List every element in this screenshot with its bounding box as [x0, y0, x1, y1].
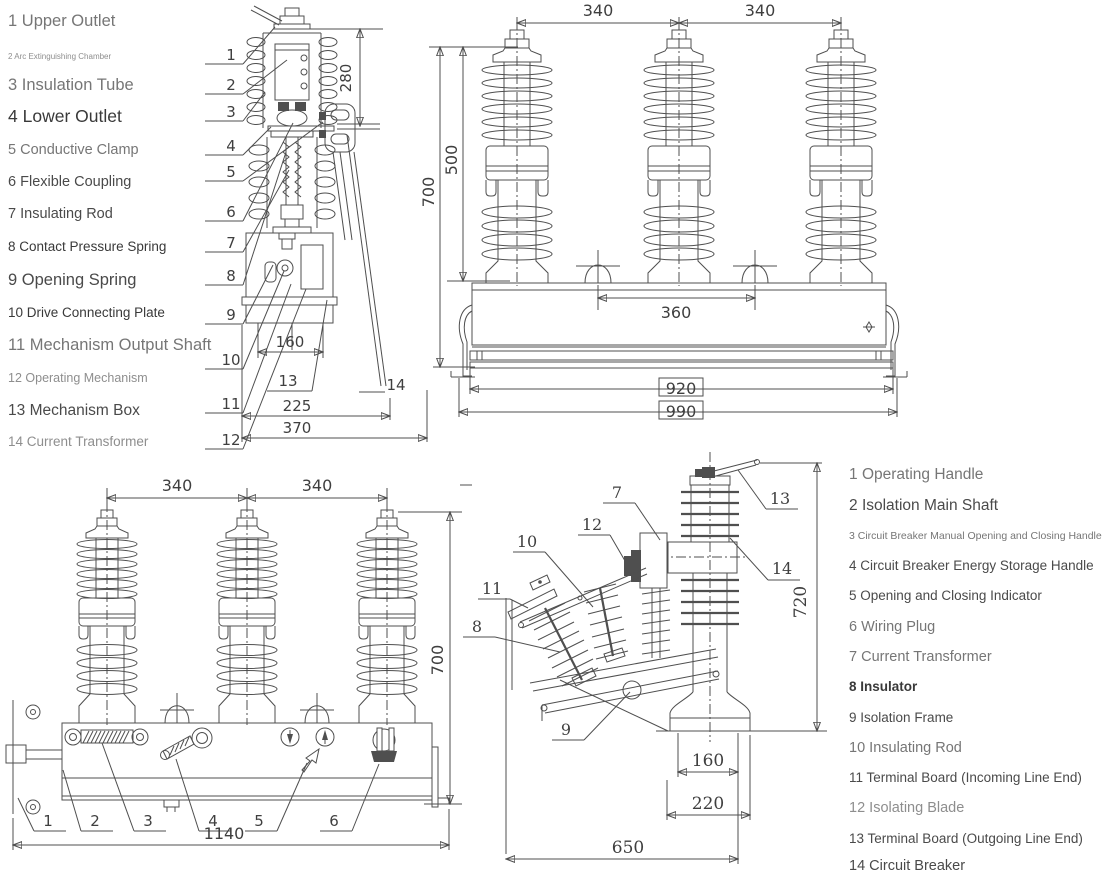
item-label: Isolation Frame: [860, 710, 953, 725]
tilted-insulator-10: [584, 584, 628, 662]
leader-number: 1: [226, 46, 236, 64]
pole: [644, 20, 714, 286]
leader-number: 13: [278, 372, 297, 390]
inter-pole-bushing: [576, 250, 777, 283]
item-label: Wiring Plug: [861, 619, 935, 635]
leader-number: 12: [221, 431, 240, 449]
list-item: 13 Terminal Board (Outgoing Line End): [849, 832, 1083, 847]
dim-label: 340: [162, 476, 193, 495]
terminal-board-incoming: [508, 575, 557, 619]
leader-numbers: 1 2 3 4 5 6: [43, 812, 339, 830]
item-label: Mechanism Box: [30, 402, 140, 419]
closing-spring: [65, 729, 148, 745]
list-item: 3 Insulation Tube: [8, 76, 134, 94]
leader-number: 5: [254, 812, 264, 830]
dimensions: 340 340 700 1140: [13, 476, 462, 850]
item-label: Flexible Coupling: [20, 174, 131, 190]
list-item: 3 Circuit Breaker Manual Opening and Clo…: [849, 531, 1102, 543]
list-item: 12 Operating Mechanism: [8, 372, 148, 386]
circuit-breaker-pole: [656, 452, 770, 742]
item-label: Operating Mechanism: [25, 371, 147, 385]
item-number: 12: [8, 371, 22, 385]
list-item: 12 Isolating Blade: [849, 801, 964, 817]
leader-number: 2: [90, 812, 100, 830]
dim-label: 340: [745, 1, 776, 20]
dimensions: 340 340 700 500 360 920 990: [419, 1, 897, 421]
list-item: 2 Arc Extinguishing Chamber: [8, 53, 111, 62]
list-item: 7 Current Transformer: [849, 650, 992, 666]
dim-label: 280: [337, 64, 355, 93]
item-label: Arc Extinguishing Chamber: [14, 52, 111, 61]
item-label: Upper Outlet: [22, 12, 116, 30]
leader-number: 7: [226, 234, 236, 252]
item-label: Operating Handle: [862, 466, 984, 483]
pole: [806, 20, 876, 286]
current-transformer: [624, 533, 667, 588]
dim-label: 650: [612, 838, 644, 858]
front-view-top-drawing: 340 340 700 500 360 920 990: [425, 0, 915, 445]
item-number: 5: [8, 142, 16, 158]
pole: [482, 20, 552, 286]
list-item: 5 Opening and Closing Indicator: [849, 589, 1042, 604]
item-label: Opening and Closing Indicator: [860, 588, 1042, 603]
leader-number: 10: [221, 351, 240, 369]
leader-number: 10: [517, 532, 537, 551]
item-number: 1: [8, 12, 17, 30]
item-number: 13: [8, 402, 25, 419]
pole: [77, 502, 137, 725]
leader-number: 12: [582, 515, 602, 534]
list-item: 2 Isolation Main Shaft: [849, 497, 998, 514]
dim-label: 720: [791, 586, 811, 618]
dim-label: 340: [583, 1, 614, 20]
list-item: 6 Wiring Plug: [849, 620, 935, 636]
list-item: 4 Circuit Breaker Energy Storage Handle: [849, 559, 1094, 574]
isolation-frame: [506, 598, 719, 854]
leader-number: 14: [772, 559, 792, 578]
leader-number: 6: [226, 203, 236, 221]
item-number: 9: [8, 271, 17, 289]
dim-label: 340: [302, 476, 333, 495]
item-label: Insulator: [860, 679, 917, 694]
item-label: Contact Pressure Spring: [19, 239, 166, 254]
item-number: 10: [8, 305, 23, 320]
leader-number: 3: [143, 812, 153, 830]
dim-label: 700: [428, 645, 447, 676]
pole-section: [247, 6, 383, 240]
opening-closing-indicator: [281, 728, 334, 772]
dim-label: 370: [283, 419, 312, 437]
dim-label: 990: [666, 402, 697, 421]
isolating-blade: [519, 568, 648, 628]
leader-number: 11: [482, 579, 502, 598]
wiring-plug: [371, 728, 397, 762]
post-insulator: [642, 588, 670, 658]
leader-numbers: 7 12 10 11 8 9 13 14: [472, 483, 792, 739]
item-label: Circuit Breaker Manual Opening and Closi…: [858, 530, 1102, 542]
item-label: Current Transformer: [861, 649, 992, 665]
list-item: 9 Opening Spring: [8, 271, 136, 289]
item-number: 6: [8, 174, 16, 190]
item-label: Lower Outlet: [23, 106, 122, 126]
dim-label: 700: [419, 177, 438, 208]
leader-number: 3: [226, 103, 236, 121]
leader-number: 8: [226, 267, 236, 285]
drawing-sheet: 1 Upper Outlet 2 Arc Extinguishing Chamb…: [0, 0, 1119, 879]
list-item: 10 Insulating Rod: [849, 741, 962, 757]
item-label: Circuit Breaker: [869, 858, 965, 874]
dim-label: 160: [692, 751, 724, 771]
list-item: 6 Flexible Coupling: [8, 175, 131, 191]
list-item: 14 Current Transformer: [8, 435, 148, 450]
dim-label: 225: [283, 397, 312, 415]
item-number: 2: [8, 52, 12, 61]
item-number: 4: [8, 106, 18, 126]
leader-number: 14: [386, 376, 405, 394]
item-label: Opening Spring: [22, 271, 137, 289]
leader-number: 7: [612, 483, 622, 502]
side-view-drawing: 7 12 10 11 8 9 13 14 720 160 220 650: [460, 440, 855, 879]
list-item: 11 Terminal Board (Incoming Line End): [849, 771, 1082, 786]
item-label: Isolating Blade: [869, 800, 964, 816]
list-item: 5 Conductive Clamp: [8, 143, 139, 159]
item-label: Insulating Rod: [869, 740, 962, 756]
list-item: 10 Drive Connecting Plate: [8, 306, 165, 321]
item-number: 14: [8, 434, 23, 449]
item-label: Current Transformer: [27, 434, 149, 449]
leader-number: 9: [226, 306, 236, 324]
list-item: 13 Mechanism Box: [8, 402, 140, 419]
leader-numbers: 1 2 3 4 5 6 7 8 9 10 11 12 13 14: [221, 46, 405, 449]
leader-lines: [463, 470, 800, 740]
leader-number: 11: [221, 395, 240, 413]
list-item: 8 Insulator: [849, 680, 917, 695]
item-label: Insulating Rod: [20, 206, 113, 222]
item-number: 3: [8, 76, 17, 94]
list-item: 4 Lower Outlet: [8, 107, 122, 126]
leader-number: 6: [329, 812, 339, 830]
leader-number: 13: [770, 489, 790, 508]
dim-label: 1140: [204, 824, 245, 843]
item-label: Insulation Tube: [22, 76, 134, 94]
item-label: Terminal Board (Outgoing Line End): [868, 831, 1083, 846]
energy-storage-handle: [161, 728, 213, 760]
list-item: 7 Insulating Rod: [8, 207, 113, 223]
item-label: Conductive Clamp: [20, 142, 138, 158]
leader-lines: [18, 743, 379, 831]
item-number: 11: [8, 336, 25, 354]
leader-number: 8: [472, 617, 482, 636]
tank: [451, 283, 907, 377]
dimensions: 720 160 220 650: [506, 463, 827, 864]
leader-number: 5: [226, 163, 236, 181]
item-label: Circuit Breaker Energy Storage Handle: [860, 558, 1093, 573]
leader-number: 1: [43, 812, 53, 830]
dim-label: 220: [692, 794, 724, 814]
item-label: Terminal Board (Incoming Line End): [867, 770, 1082, 785]
front-view-bottom-drawing: 1 2 3 4 5 6 340 340 700 1140: [0, 468, 465, 879]
dim-label: 160: [276, 333, 305, 351]
item-label: Isolation Main Shaft: [862, 497, 998, 514]
list-item: 9 Isolation Frame: [849, 711, 953, 726]
pole: [357, 502, 417, 725]
leader-number: 2: [226, 76, 236, 94]
dim-label: 360: [661, 303, 692, 322]
operating-handle: [6, 700, 62, 814]
list-item: 14 Circuit Breaker: [849, 859, 965, 875]
item-label: Drive Connecting Plate: [27, 305, 165, 320]
section-view-drawing: 1 2 3 4 5 6 7 8 9 10 11 12 13 14 280 160…: [175, 0, 437, 460]
dim-label: 500: [442, 145, 461, 176]
list-item: 1 Upper Outlet: [8, 12, 115, 30]
leader-number: 4: [226, 137, 236, 155]
list-item: 1 Operating Handle: [849, 466, 983, 483]
tilted-insulator-8: [529, 603, 598, 686]
item-number: 8: [8, 239, 16, 254]
pole: [217, 502, 277, 725]
dim-label: 920: [666, 379, 697, 398]
item-number: 7: [8, 206, 16, 222]
leader-number: 9: [561, 720, 571, 739]
list-item: 8 Contact Pressure Spring: [8, 240, 166, 255]
